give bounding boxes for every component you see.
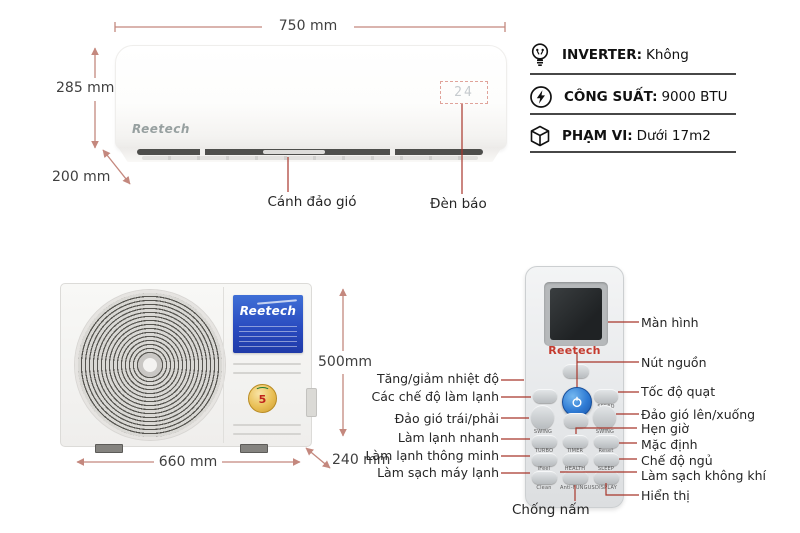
spec-coverage: PHẠM VI:Dưới 17m2	[529, 124, 711, 148]
dim-indoor-height: 285 mm	[56, 80, 114, 96]
label-self-clean: Làm sạch máy lạnh	[377, 465, 499, 480]
label-power-button: Nút nguồn	[641, 355, 707, 370]
dim-indoor-width: 750 mm	[262, 18, 354, 34]
spec-capacity-value: 9000 BTU	[661, 89, 727, 105]
spec-coverage-value: Dưới 17m2	[637, 128, 711, 144]
label-smart-cooling: Làm lạnh thông minh	[365, 448, 499, 463]
label-default: Mặc định	[641, 437, 698, 452]
label-fan-speed: Tốc độ quạt	[641, 384, 715, 399]
label-display: Hiển thị	[641, 488, 690, 503]
label-fast-cooling: Làm lạnh nhanh	[398, 430, 499, 445]
dim-outdoor-width: 660 mm	[156, 454, 220, 470]
label-sleep-mode: Chế độ ngủ	[641, 453, 713, 468]
spec-inverter-value: Không	[646, 47, 689, 63]
label-screen: Màn hình	[641, 315, 699, 330]
label-air-clean: Làm sạch không khí	[641, 468, 766, 483]
spec-capacity: CÔNG SUẤT:9000 BTU	[529, 85, 728, 109]
dim-outdoor-height: 500mm	[314, 354, 376, 370]
label-temp-updown: Tăng/giảm nhiệt độ	[377, 371, 499, 386]
spec-inverter-label: INVERTER:	[562, 47, 642, 63]
label-swing-blade: Cánh đảo gió	[264, 195, 360, 210]
label-cooling-modes: Các chế độ làm lạnh	[371, 389, 499, 404]
label-anti-fungus: Chống nấm	[512, 503, 590, 518]
dim-indoor-depth: 200 mm	[52, 169, 110, 185]
product-diagram: Reetech 24 Reetech 5	[0, 0, 800, 533]
label-timer: Hẹn giờ	[641, 421, 689, 436]
spec-capacity-label: CÔNG SUẤT:	[564, 89, 657, 105]
lightning-icon	[529, 85, 553, 109]
label-indicator-light: Đèn báo	[430, 197, 487, 212]
bulb-icon	[529, 42, 551, 68]
spec-coverage-label: PHẠM VI:	[562, 128, 633, 144]
label-swing-leftright: Đảo gió trái/phải	[395, 411, 499, 426]
label-swing-updown: Đảo gió lên/xuống	[641, 407, 755, 422]
spec-inverter: INVERTER:Không	[529, 42, 689, 68]
cube-icon	[529, 124, 551, 148]
